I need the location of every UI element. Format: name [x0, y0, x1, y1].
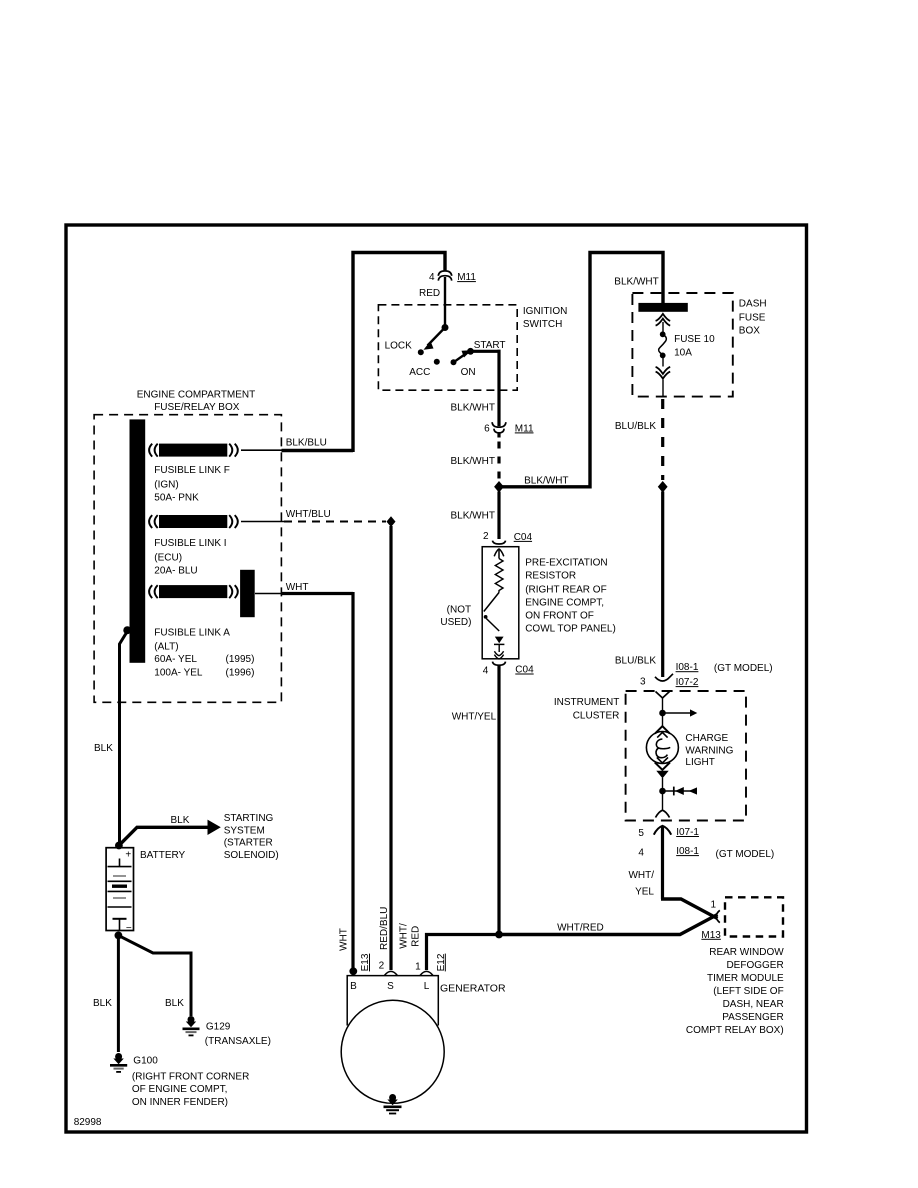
svg-text:CLUSTER: CLUSTER [573, 711, 620, 722]
svg-text:C04: C04 [515, 665, 534, 676]
svg-text:USED): USED) [440, 617, 471, 628]
svg-text:SOLENOID): SOLENOID) [224, 850, 279, 861]
svg-text:(LEFT SIDE OF: (LEFT SIDE OF [713, 986, 783, 997]
svg-text:(STARTER: (STARTER [224, 838, 273, 849]
svg-text:COWL TOP PANEL): COWL TOP PANEL) [525, 623, 616, 634]
svg-text:BLU/BLK: BLU/BLK [615, 421, 656, 432]
svg-text:RED: RED [419, 288, 440, 299]
svg-text:2: 2 [379, 960, 385, 971]
svg-text:+: + [125, 850, 131, 861]
svg-text:LIGHT: LIGHT [685, 757, 714, 768]
svg-text:E13: E13 [360, 953, 371, 971]
svg-text:M11: M11 [457, 272, 476, 283]
svg-text:82998: 82998 [74, 1117, 102, 1128]
svg-text:BLK/WHT: BLK/WHT [451, 403, 495, 414]
svg-text:SYSTEM: SYSTEM [224, 825, 265, 836]
svg-text:I08-1: I08-1 [676, 662, 699, 673]
svg-text:C04: C04 [514, 532, 533, 543]
svg-text:FUSE/RELAY BOX: FUSE/RELAY BOX [154, 402, 240, 413]
svg-text:WHT/: WHT/ [628, 870, 654, 881]
svg-text:−: − [126, 923, 132, 934]
svg-text:OF ENGINE COMPT,: OF ENGINE COMPT, [132, 1084, 228, 1095]
svg-text:FUSIBLE LINK F: FUSIBLE LINK F [154, 465, 230, 476]
svg-text:DASH, NEAR: DASH, NEAR [723, 999, 784, 1010]
svg-text:I07-2: I07-2 [676, 677, 699, 688]
svg-text:FUSE: FUSE [739, 312, 766, 323]
svg-text:BLK: BLK [165, 998, 184, 1009]
svg-text:(ALT): (ALT) [154, 641, 178, 652]
svg-text:(1996): (1996) [226, 668, 255, 679]
svg-text:(IGN): (IGN) [154, 480, 178, 491]
svg-text:BLK/WHT: BLK/WHT [451, 456, 495, 467]
svg-text:CHARGE: CHARGE [685, 733, 728, 744]
svg-text:ON INNER FENDER): ON INNER FENDER) [132, 1097, 228, 1108]
svg-text:I08-1: I08-1 [676, 846, 699, 857]
svg-text:BOX: BOX [739, 325, 760, 336]
svg-text:BLK: BLK [93, 998, 112, 1009]
svg-text:B: B [350, 981, 357, 992]
svg-text:(ECU): (ECU) [154, 553, 182, 564]
svg-text:1: 1 [415, 961, 421, 972]
svg-text:ENGINE COMPT,: ENGINE COMPT, [525, 597, 604, 608]
svg-text:ON FRONT OF: ON FRONT OF [525, 610, 594, 621]
svg-text:GENERATOR: GENERATOR [440, 983, 506, 995]
svg-text:G129: G129 [206, 1022, 231, 1033]
svg-text:BATTERY: BATTERY [140, 850, 186, 861]
svg-text:BLU/BLK: BLU/BLK [615, 656, 656, 667]
svg-text:S: S [387, 981, 394, 992]
svg-text:BLK/BLU: BLK/BLU [286, 438, 327, 449]
svg-text:PASSENGER: PASSENGER [722, 1012, 784, 1023]
svg-text:L: L [424, 981, 430, 992]
svg-text:ACC: ACC [409, 367, 430, 378]
svg-text:WHT: WHT [339, 928, 350, 951]
svg-text:INSTRUMENT: INSTRUMENT [554, 697, 620, 708]
svg-text:BLK/WHT: BLK/WHT [614, 276, 658, 287]
svg-text:WHT: WHT [286, 582, 309, 593]
svg-text:DEFOGGER: DEFOGGER [726, 960, 783, 971]
svg-text:ON: ON [461, 367, 476, 378]
svg-text:20A- BLU: 20A- BLU [154, 565, 197, 576]
svg-text:6: 6 [484, 423, 490, 434]
svg-text:(NOT: (NOT [447, 604, 471, 615]
svg-text:10A: 10A [674, 347, 692, 358]
svg-text:2: 2 [483, 531, 489, 542]
svg-text:(GT MODEL): (GT MODEL) [716, 849, 775, 860]
svg-text:FUSE 10: FUSE 10 [674, 334, 715, 345]
svg-text:IGNITION: IGNITION [523, 306, 567, 317]
svg-text:WHT/YEL: WHT/YEL [452, 711, 497, 722]
svg-text:COMPT RELAY BOX): COMPT RELAY BOX) [686, 1025, 784, 1036]
svg-text:START: START [474, 340, 506, 351]
svg-text:ENGINE COMPARTMENT: ENGINE COMPARTMENT [137, 390, 256, 401]
svg-text:BLK: BLK [94, 743, 113, 754]
svg-text:WHT/BLU: WHT/BLU [286, 509, 331, 520]
svg-text:M11: M11 [515, 423, 534, 434]
svg-text:RED/BLU: RED/BLU [379, 907, 390, 950]
svg-text:4: 4 [429, 272, 435, 283]
svg-text:G100: G100 [133, 1055, 158, 1066]
svg-text:PRE-EXCITATION: PRE-EXCITATION [525, 558, 607, 569]
svg-text:SWITCH: SWITCH [523, 319, 562, 330]
svg-text:(RIGHT FRONT CORNER: (RIGHT FRONT CORNER [132, 1071, 249, 1082]
svg-text:I07-1: I07-1 [676, 827, 699, 838]
svg-text:RESISTOR: RESISTOR [525, 571, 576, 582]
svg-text:(TRANSAXLE): (TRANSAXLE) [205, 1036, 271, 1047]
svg-text:DASH: DASH [739, 298, 767, 309]
svg-text:BLK/WHT: BLK/WHT [451, 511, 495, 522]
svg-text:BLK: BLK [171, 815, 190, 826]
svg-text:50A- PNK: 50A- PNK [154, 492, 199, 503]
svg-text:(GT MODEL): (GT MODEL) [714, 663, 773, 674]
svg-text:1: 1 [711, 900, 717, 911]
svg-text:WARNING: WARNING [685, 745, 733, 756]
svg-text:WHT/RED: WHT/RED [557, 923, 604, 934]
svg-text:60A- YEL: 60A- YEL [154, 654, 197, 665]
svg-text:4: 4 [483, 665, 489, 676]
svg-text:4: 4 [638, 847, 644, 858]
svg-text:BLK/WHT: BLK/WHT [524, 476, 568, 487]
svg-text:YEL: YEL [635, 887, 654, 898]
svg-text:100A- YEL: 100A- YEL [154, 668, 203, 679]
svg-text:(1995): (1995) [226, 654, 255, 665]
svg-text:RED: RED [410, 926, 421, 947]
svg-text:E12: E12 [436, 953, 447, 971]
svg-text:REAR WINDOW: REAR WINDOW [709, 947, 784, 958]
svg-text:LOCK: LOCK [385, 340, 413, 351]
svg-text:WHT/: WHT/ [398, 923, 409, 949]
svg-text:FUSIBLE LINK I: FUSIBLE LINK I [154, 538, 226, 549]
svg-text:3: 3 [640, 677, 646, 688]
svg-text:M13: M13 [701, 930, 721, 941]
svg-text:TIMER MODULE: TIMER MODULE [707, 973, 784, 984]
svg-text:FUSIBLE LINK A: FUSIBLE LINK A [154, 627, 230, 638]
svg-text:(RIGHT REAR OF: (RIGHT REAR OF [525, 584, 606, 595]
svg-text:STARTING: STARTING [224, 813, 274, 824]
svg-text:5: 5 [638, 828, 644, 839]
